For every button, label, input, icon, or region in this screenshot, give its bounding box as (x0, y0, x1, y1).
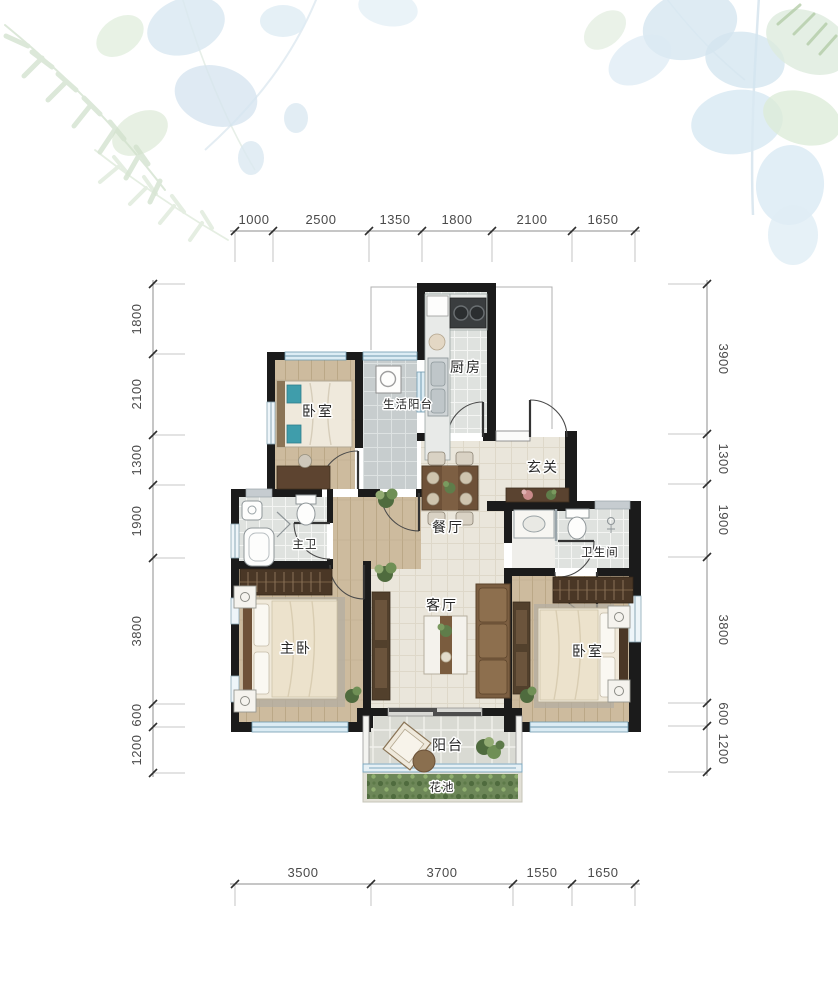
room-label-bedroom-top: 卧室 (302, 403, 334, 419)
dim-top-1: 2500 (306, 212, 337, 227)
dim-left-6: 1200 (129, 735, 144, 766)
dim-left-5: 600 (129, 703, 144, 726)
door-entry (530, 400, 567, 437)
dimension-chain-left: 1800 2100 1300 1900 3800 600 1200 (129, 280, 185, 777)
tv-cabinet-living (372, 592, 390, 700)
room-label-master-bath: 主卫 (293, 538, 318, 551)
entry-console (506, 488, 569, 502)
dimension-chain-top: 1000 2500 1350 1800 2100 1650 (230, 212, 640, 262)
room-label-living: 客厅 (426, 597, 458, 613)
room-label-dining: 餐厅 (432, 519, 464, 535)
room-label-flower-bed: 花池 (430, 781, 455, 794)
dim-right-3: 3800 (716, 615, 731, 646)
dim-right-4: 600 (716, 702, 731, 725)
room-label-kitchen: 厨房 (450, 359, 482, 375)
dim-top-0: 1000 (239, 212, 270, 227)
dim-bottom-2: 1550 (527, 865, 558, 880)
window-bathroom-top (595, 501, 630, 509)
master-nightstand-1 (234, 586, 256, 608)
dim-top-4: 2100 (517, 212, 548, 227)
door-balcony-sliding (388, 708, 482, 716)
coffee-table (424, 616, 467, 674)
window-bedroom-top (285, 352, 346, 360)
window-service-balcony-top (363, 352, 417, 360)
balcony-side-table (413, 750, 435, 772)
room-label-entry: 玄关 (527, 459, 559, 475)
dim-top-5: 1650 (588, 212, 619, 227)
window-master-bedroom-bottom (252, 722, 348, 732)
dim-top-3: 1800 (442, 212, 473, 227)
window-bedroom-right-bottom (530, 722, 628, 732)
right-wardrobe (553, 577, 633, 603)
tv-cabinet-right-bedroom (513, 602, 530, 694)
washing-machine (376, 366, 401, 393)
dimension-chain-right: 3900 1300 1900 3800 600 1200 (668, 280, 731, 776)
dim-left-3: 1900 (129, 506, 144, 537)
window-bedroom-top-left (267, 402, 275, 444)
dimension-chain-bottom: 3500 3700 1550 1650 (230, 865, 640, 906)
right-nightstand-1 (608, 606, 630, 628)
floor-plan-canvas: 1000 2500 1350 1800 2100 1650 3500 3700 … (0, 0, 838, 1005)
dim-bottom-1: 3700 (427, 865, 458, 880)
dim-bottom-3: 1650 (588, 865, 619, 880)
dim-right-2: 1900 (716, 505, 731, 536)
window-master-bath-left (231, 524, 239, 558)
sofa (476, 584, 510, 698)
dim-left-4: 3800 (129, 616, 144, 647)
dim-left-2: 1300 (129, 445, 144, 476)
foliage-decoration-top-left (5, 0, 421, 240)
dim-right-5: 1200 (716, 734, 731, 765)
master-nightstand-2 (234, 690, 256, 712)
room-label-service-balcony: 生活阳台 (383, 397, 433, 411)
window-master-bath-top (246, 489, 272, 497)
right-nightstand-2 (608, 680, 630, 702)
room-label-master-bedroom: 主卧 (280, 640, 312, 656)
dim-left-0: 1800 (129, 304, 144, 335)
room-label-balcony: 阳台 (432, 737, 464, 753)
room-label-bathroom: 卫生间 (581, 545, 619, 559)
dim-right-0: 3900 (716, 344, 731, 375)
floor-plan-page: 1000 2500 1350 1800 2100 1650 3500 3700 … (0, 0, 838, 1005)
dim-top-2: 1350 (380, 212, 411, 227)
room-label-bedroom-right: 卧室 (572, 643, 604, 659)
dim-left-1: 2100 (129, 379, 144, 410)
dim-right-1: 1300 (716, 444, 731, 475)
dim-bottom-0: 3500 (288, 865, 319, 880)
